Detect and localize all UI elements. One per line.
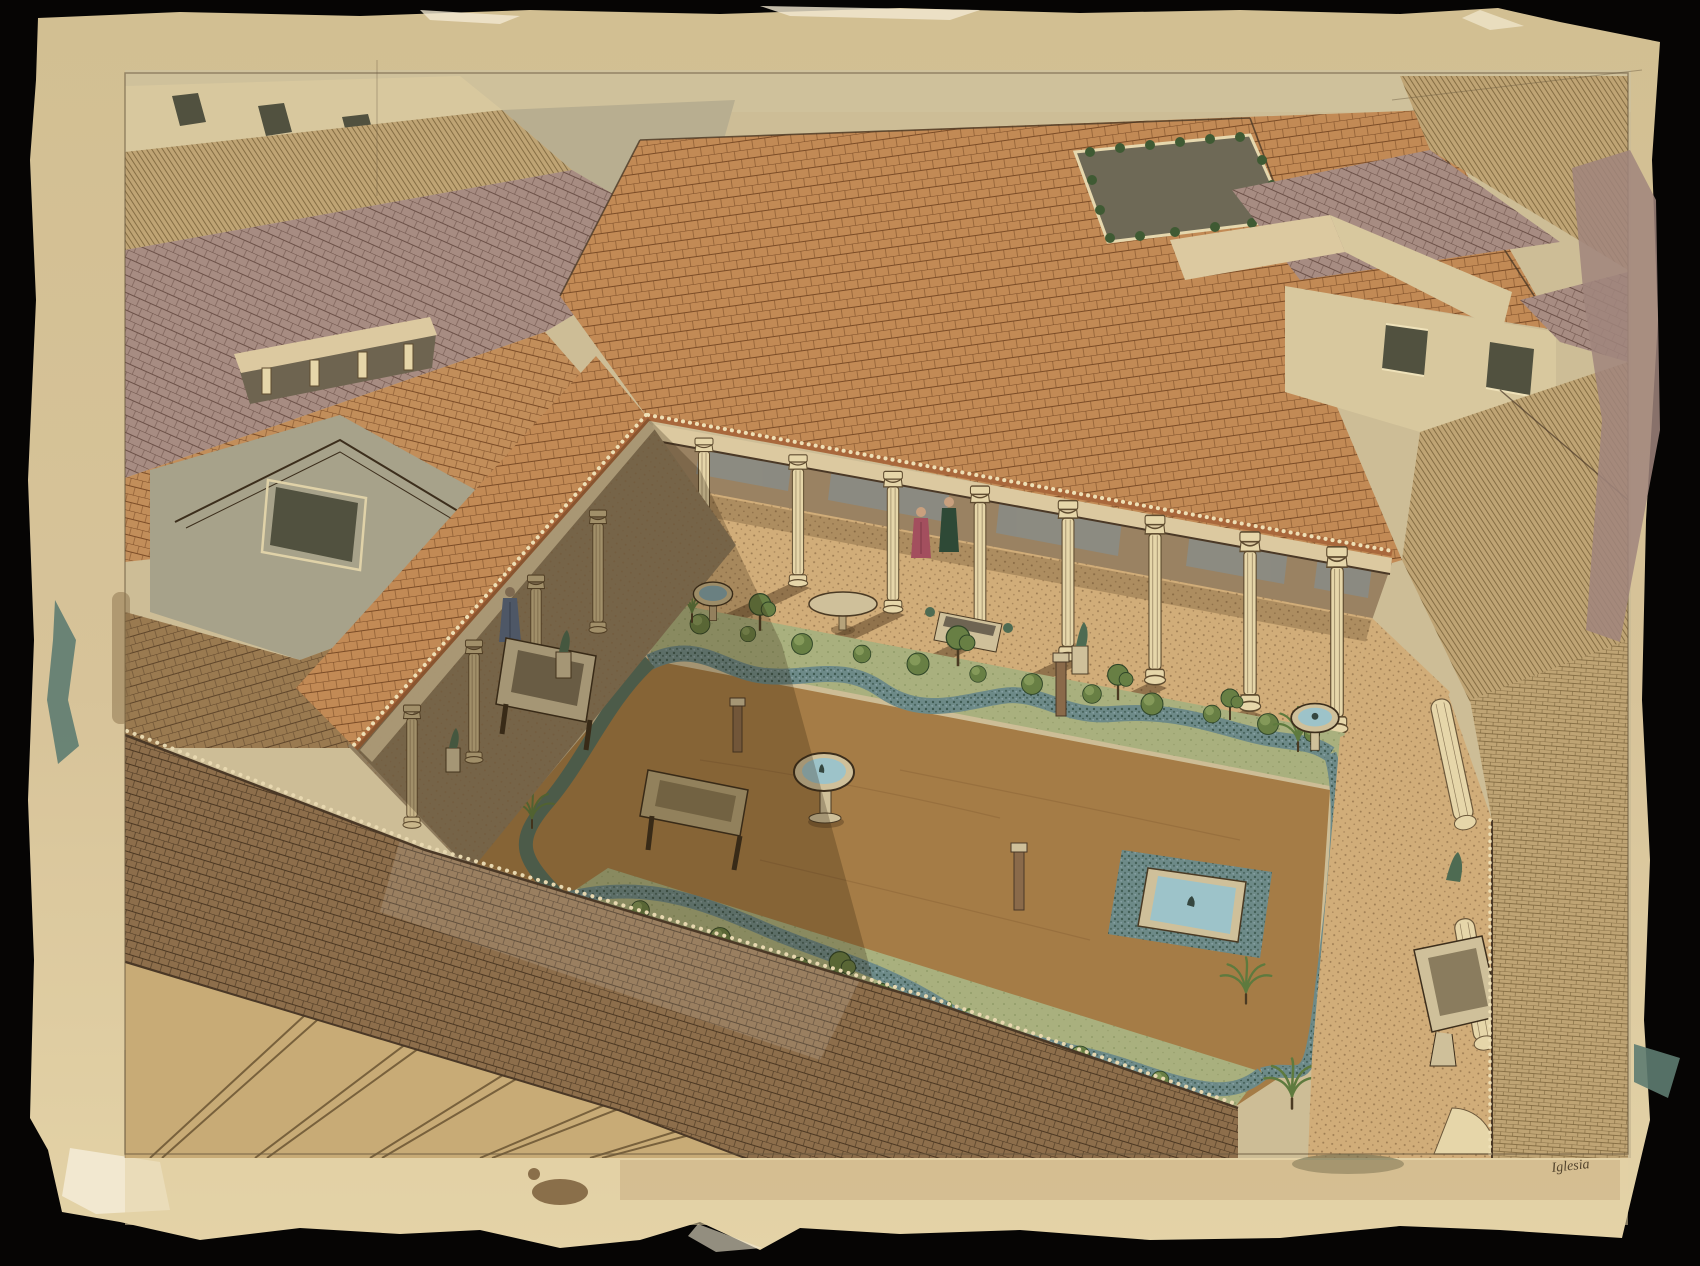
square-window <box>1382 324 1428 376</box>
painting-canvas: Iglesia <box>0 0 1700 1266</box>
drawing-area <box>125 70 1631 1158</box>
artwork-photo: Iglesia <box>0 0 1700 1266</box>
stain-blot <box>532 1179 588 1205</box>
bottom-wash <box>620 1160 1620 1200</box>
near-roof-right <box>1470 640 1628 1158</box>
square-window <box>1486 342 1534 396</box>
brown-smudge-left <box>112 592 130 724</box>
stain-dot <box>528 1168 540 1180</box>
